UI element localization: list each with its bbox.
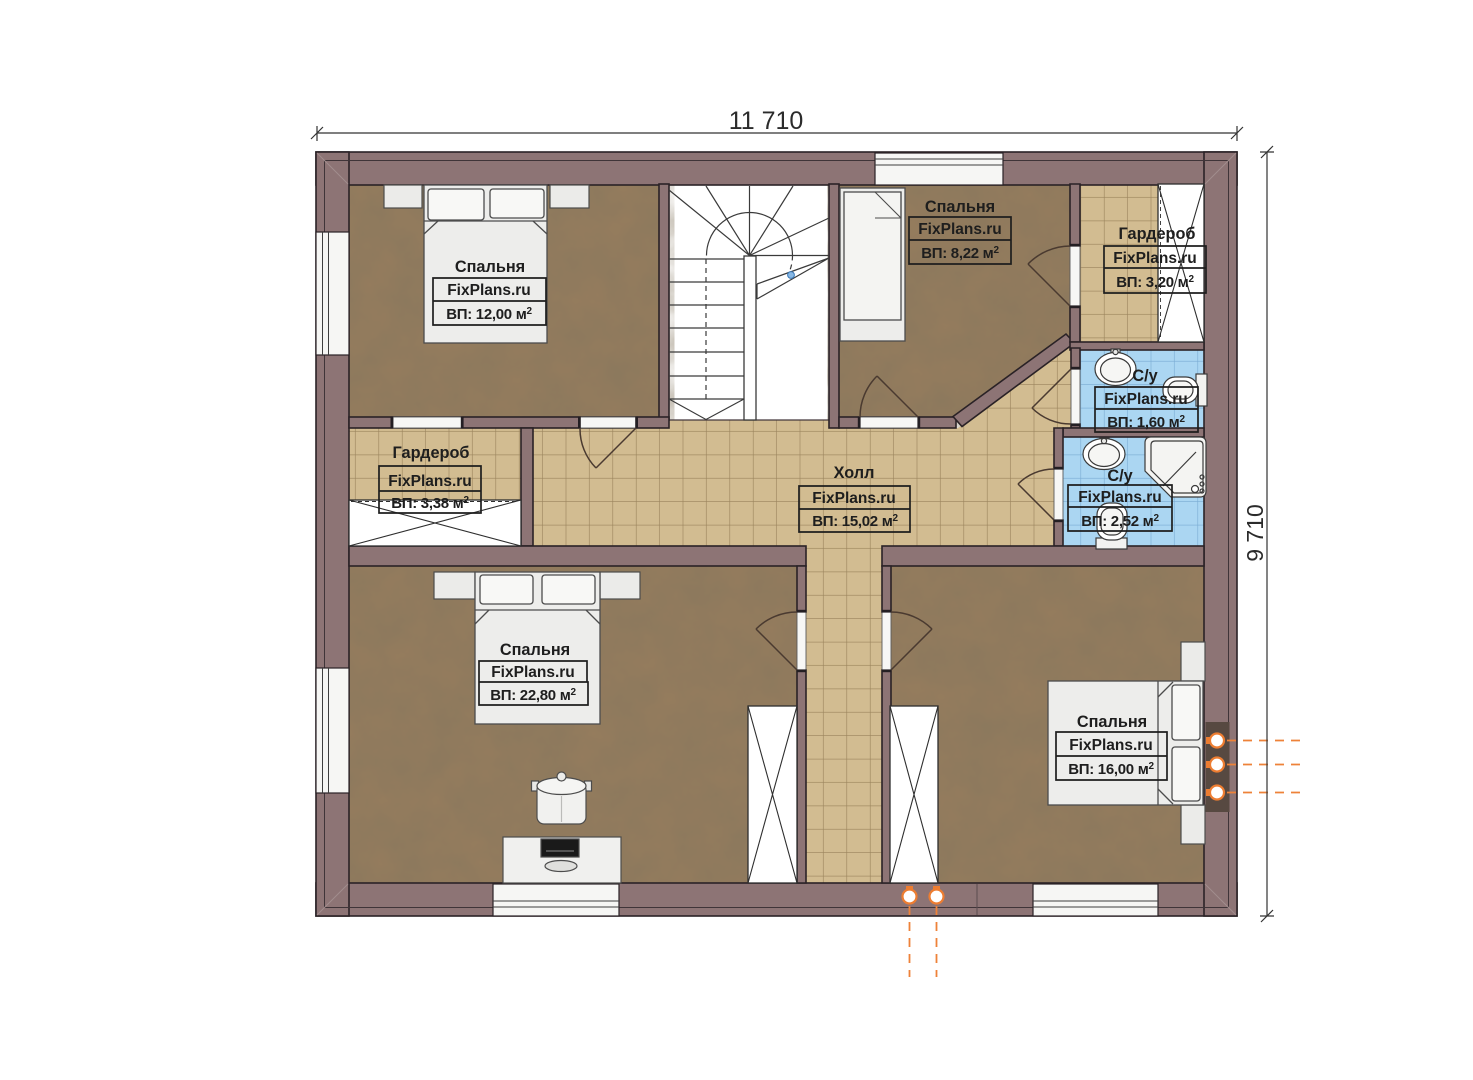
svg-text:11 710: 11 710 xyxy=(729,107,804,135)
svg-text:ВП: 16,00 м2: ВП: 16,00 м2 xyxy=(1068,761,1154,778)
svg-text:Холл: Холл xyxy=(834,464,875,482)
svg-text:FixPlans.ru: FixPlans.ru xyxy=(1104,391,1188,408)
svg-text:С/у: С/у xyxy=(1107,467,1132,485)
svg-text:Спальня: Спальня xyxy=(500,641,570,659)
svg-text:FixPlans.ru: FixPlans.ru xyxy=(447,282,531,299)
svg-text:FixPlans.ru: FixPlans.ru xyxy=(1113,250,1197,267)
svg-text:FixPlans.ru: FixPlans.ru xyxy=(918,221,1002,238)
svg-text:ВП: 15,02 м2: ВП: 15,02 м2 xyxy=(812,513,898,530)
svg-text:ВП: 3,20 м2: ВП: 3,20 м2 xyxy=(1116,274,1194,291)
svg-text:FixPlans.ru: FixPlans.ru xyxy=(491,664,575,681)
svg-text:ВП: 22,80 м2: ВП: 22,80 м2 xyxy=(490,687,576,704)
svg-text:FixPlans.ru: FixPlans.ru xyxy=(388,473,472,490)
svg-text:С/у: С/у xyxy=(1132,367,1157,385)
svg-text:FixPlans.ru: FixPlans.ru xyxy=(1078,489,1162,506)
svg-text:Гардероб: Гардероб xyxy=(393,444,470,462)
svg-text:Спальня: Спальня xyxy=(1077,713,1147,731)
svg-text:Спальня: Спальня xyxy=(925,198,995,216)
svg-text:Гардероб: Гардероб xyxy=(1119,225,1196,243)
svg-text:FixPlans.ru: FixPlans.ru xyxy=(812,490,896,507)
svg-text:ВП: 2,52 м2: ВП: 2,52 м2 xyxy=(1081,513,1159,530)
svg-text:FixPlans.ru: FixPlans.ru xyxy=(1069,737,1153,754)
svg-text:ВП: 8,22 м2: ВП: 8,22 м2 xyxy=(921,245,999,262)
svg-text:9 710: 9 710 xyxy=(1242,504,1268,562)
svg-text:ВП: 12,00 м2: ВП: 12,00 м2 xyxy=(446,306,532,323)
svg-text:ВП: 3,38 м2: ВП: 3,38 м2 xyxy=(391,495,469,512)
svg-text:ВП: 1,60 м2: ВП: 1,60 м2 xyxy=(1107,414,1185,431)
svg-text:Спальня: Спальня xyxy=(455,258,525,276)
